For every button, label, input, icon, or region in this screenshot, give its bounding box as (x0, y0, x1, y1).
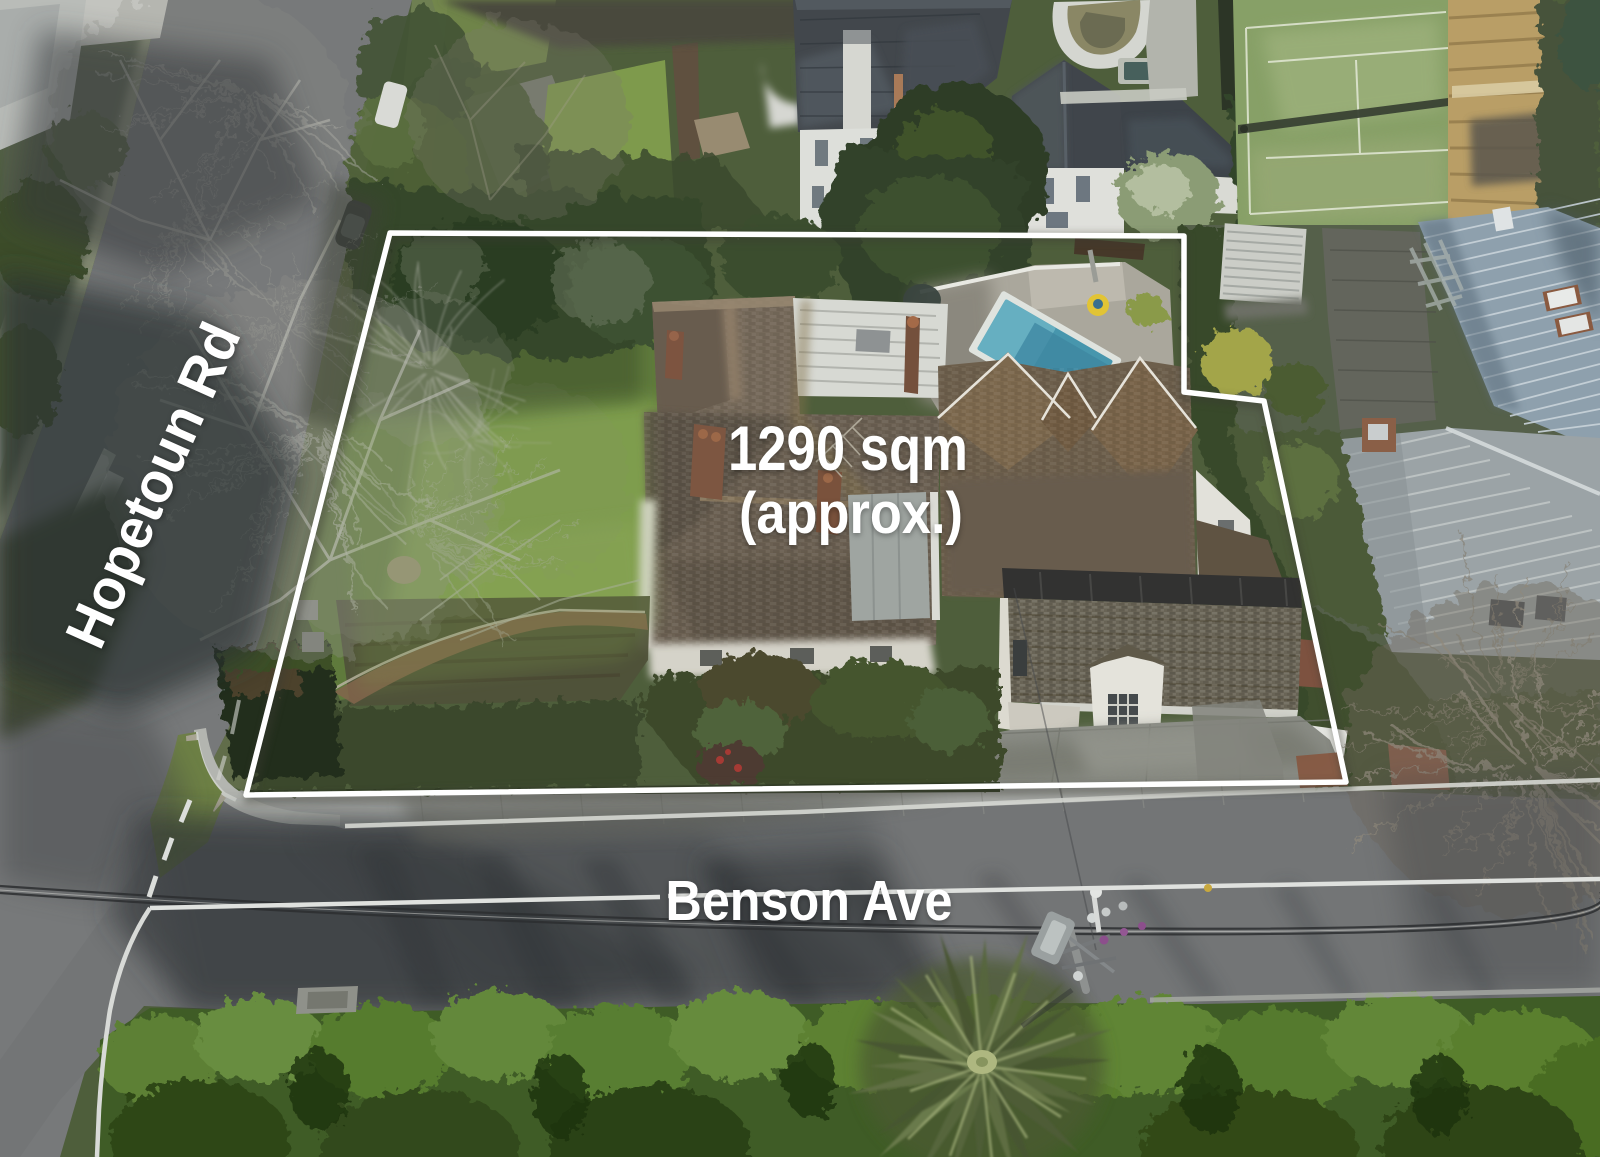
svg-text:(approx.): (approx.) (739, 481, 963, 546)
svg-text:1290 sqm: 1290 sqm (728, 414, 968, 484)
svg-text:Benson Ave: Benson Ave (666, 869, 953, 933)
